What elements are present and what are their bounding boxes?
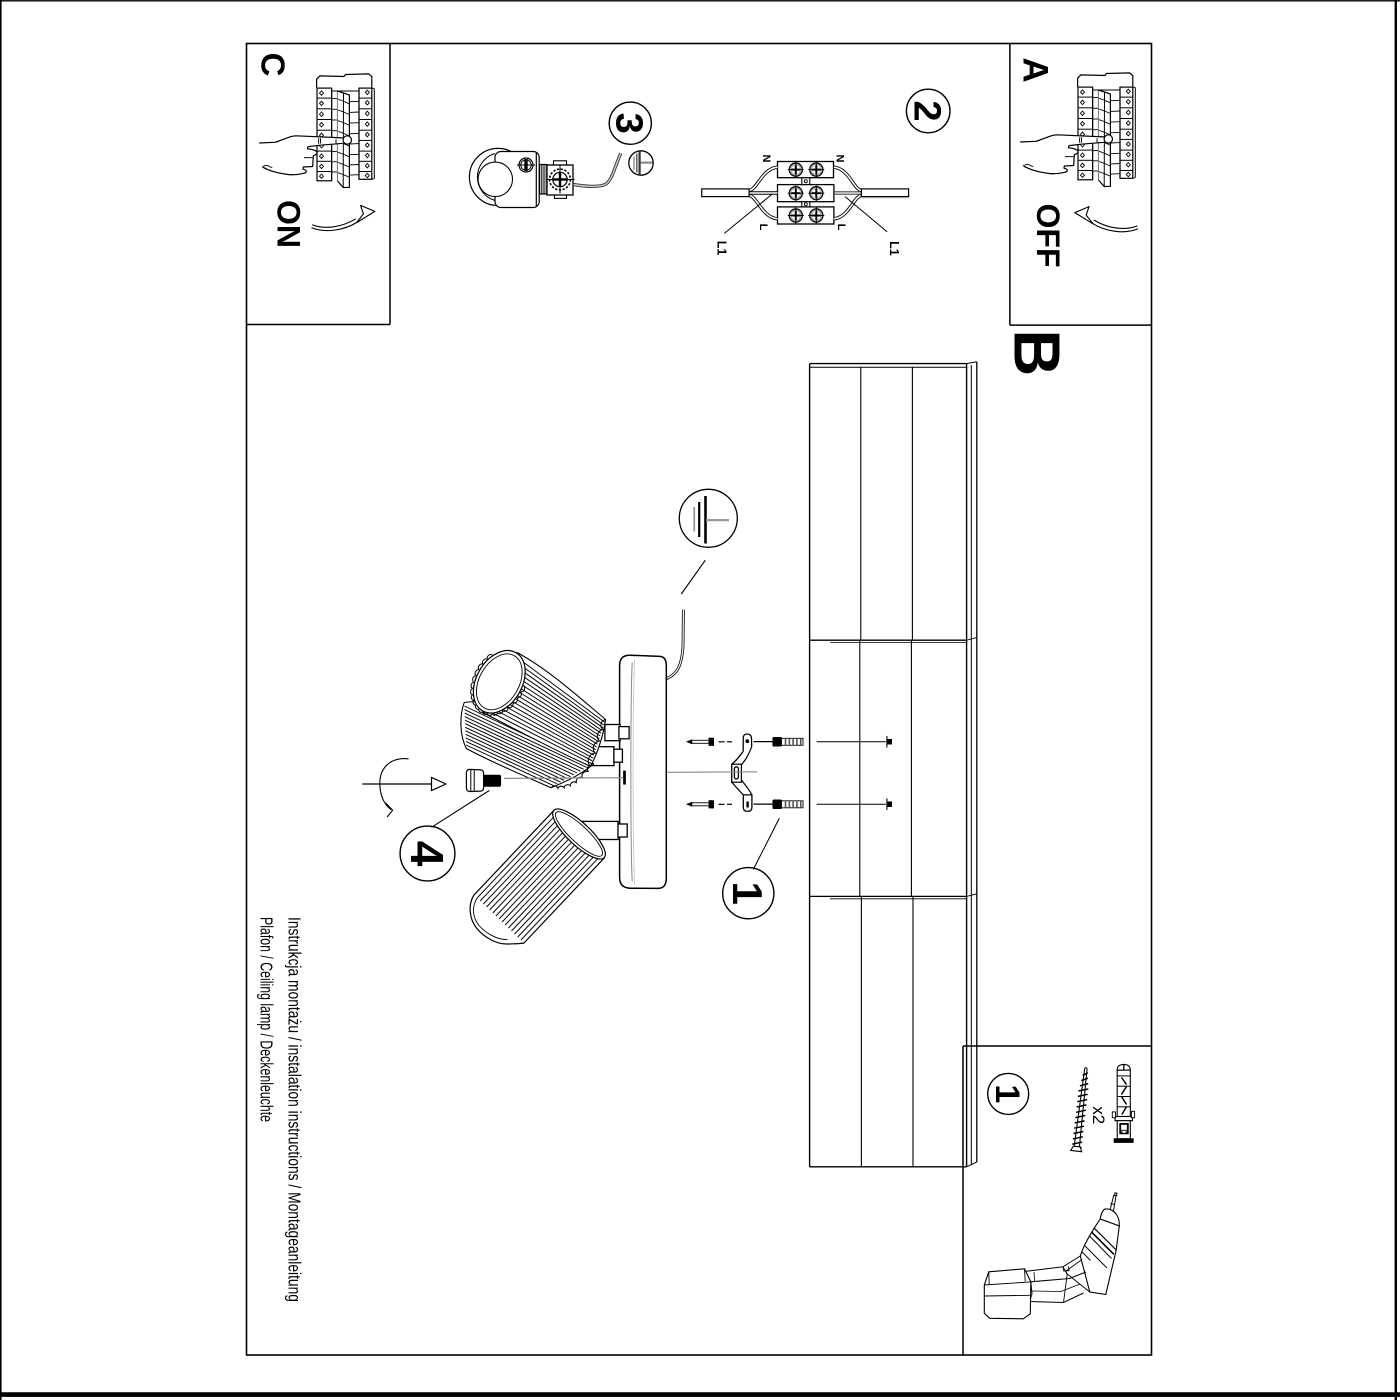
svg-text:B: B (1001, 329, 1074, 376)
svg-text:2: 2 (906, 100, 948, 121)
svg-text:L1: L1 (887, 241, 901, 256)
svg-text:Plafon / Ceiling lamp / Decken: Plafon / Ceiling lamp / Deckenleuchte (257, 917, 277, 1122)
svg-text:N: N (760, 155, 772, 163)
svg-text:1: 1 (724, 882, 771, 905)
svg-text:L1: L1 (715, 241, 729, 256)
svg-text:A: A (1016, 57, 1055, 82)
svg-text:L: L (757, 224, 769, 231)
svg-text:4: 4 (401, 841, 453, 867)
svg-text:1: 1 (988, 1084, 1026, 1103)
svg-text:C: C (255, 53, 292, 77)
svg-text:OFF: OFF (1030, 204, 1066, 268)
svg-text:Instrukcja montażu / instalati: Instrukcja montażu / instalation instruc… (285, 917, 305, 1302)
svg-text:ON: ON (271, 200, 307, 248)
svg-text:3: 3 (608, 113, 650, 134)
svg-text:x2: x2 (1089, 1106, 1108, 1124)
svg-text:N: N (834, 155, 846, 163)
svg-text:L: L (835, 224, 847, 231)
